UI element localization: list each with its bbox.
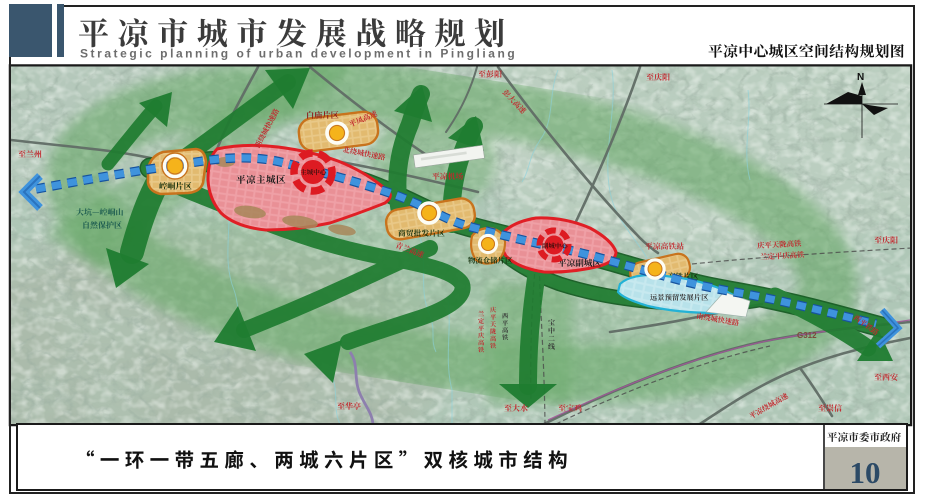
svg-text:G312: G312 [797,331,817,340]
svg-text:Strategic planning of urban de: Strategic planning of urban development … [80,47,517,61]
svg-text:N: N [857,72,864,83]
svg-text:10: 10 [850,455,881,490]
